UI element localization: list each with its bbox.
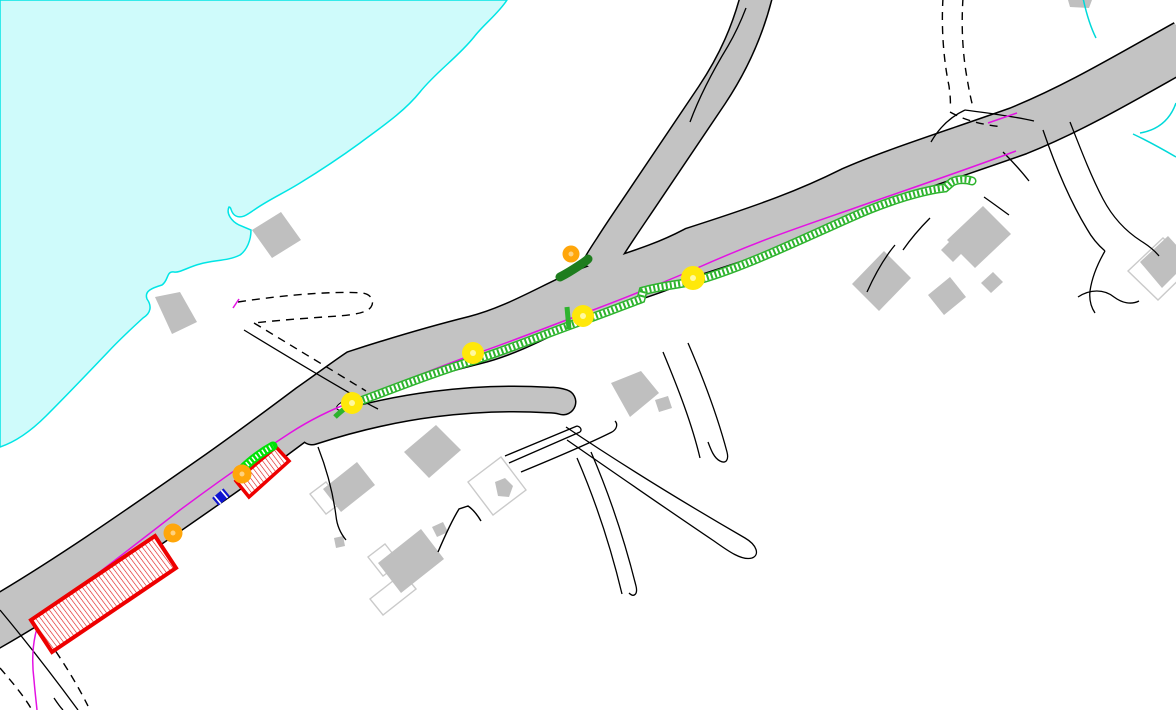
driveway-edge	[1078, 291, 1139, 303]
water-body	[0, 0, 507, 447]
building	[334, 536, 345, 548]
lane-line	[577, 458, 622, 594]
cadastral-dashed	[942, 0, 950, 108]
point-marker-yellow-center	[349, 400, 355, 406]
point-marker-orange-center	[240, 472, 245, 477]
building	[611, 371, 659, 417]
building	[852, 251, 911, 311]
driveway-edge	[1090, 251, 1105, 313]
building	[155, 292, 197, 334]
lane-line	[591, 452, 637, 595]
cadastral-dashed	[962, 0, 973, 107]
building	[655, 396, 672, 412]
building	[928, 277, 966, 315]
building	[404, 425, 461, 478]
stream-line	[1133, 134, 1176, 157]
lane-line	[688, 343, 728, 462]
map-canvas[interactable]	[0, 0, 1176, 710]
fence-line	[903, 218, 930, 250]
point-marker-yellow-center	[580, 313, 586, 319]
building	[252, 212, 301, 258]
track-line	[577, 426, 581, 432]
lane-line	[566, 427, 756, 559]
map-layers	[0, 0, 1176, 710]
point-marker-yellow-center	[690, 275, 696, 281]
point-marker-orange-center	[171, 531, 176, 536]
cadastral-dashed	[238, 292, 373, 323]
stream-line	[1140, 103, 1176, 133]
map-viewport[interactable]	[0, 0, 1176, 710]
point-marker-yellow-center	[470, 350, 476, 356]
building	[378, 529, 444, 593]
driveway-edge	[1043, 130, 1105, 251]
track-line	[505, 426, 577, 456]
building	[1068, 0, 1092, 8]
building	[981, 272, 1003, 293]
fence-line	[54, 698, 63, 710]
utility-line-magenta	[233, 299, 239, 308]
point-marker-orange-center	[569, 252, 574, 257]
building	[947, 206, 1011, 268]
track-line	[509, 432, 580, 463]
driveway-edge	[1070, 122, 1159, 256]
cadastral-dashed	[0, 668, 32, 710]
green-path-spur	[567, 307, 569, 329]
